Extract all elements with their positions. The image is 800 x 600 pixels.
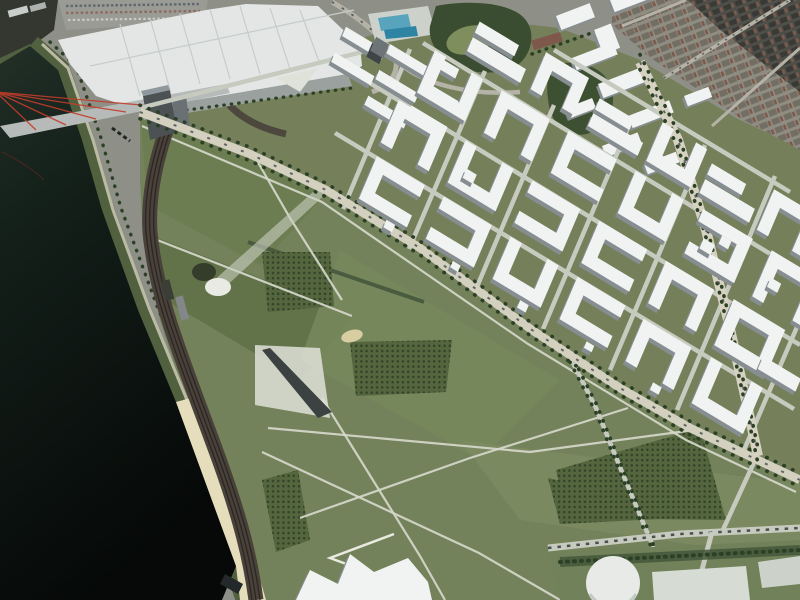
- scene-canvas: [0, 0, 800, 600]
- tree-grove-canopy: [350, 340, 452, 396]
- dome-shadow: [192, 263, 216, 281]
- aerial-masterplan-rendering: [0, 0, 800, 600]
- tree-grove-canopy: [262, 252, 334, 312]
- sports-field: [652, 566, 750, 600]
- dome-pavilion: [205, 278, 231, 296]
